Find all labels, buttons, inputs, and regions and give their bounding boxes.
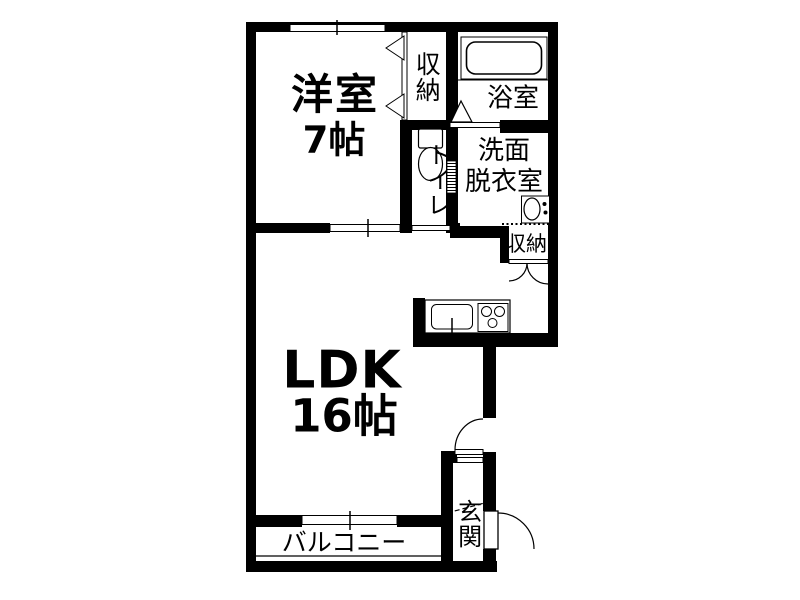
storage-door-arc-right [527,263,548,284]
front-door-leaf [484,511,498,549]
wall-kitchen-bottom [413,333,558,347]
bedroom-size-label: 7帖 [303,122,366,161]
stove-burner-2 [495,307,505,317]
wall-washroom-bottom [450,226,502,238]
wall-exterior-right [548,22,558,347]
wall-bath-bottom [500,120,548,133]
sliding-door-toilet [412,226,450,231]
balcony-label: バルコニー [282,530,407,556]
bathroom-label: 浴室 [487,85,539,112]
stove-burner-3 [488,319,497,328]
bathtub-icon [467,42,542,74]
ldk-size-label: 16帖 [290,392,398,439]
wall-ldk-balcony-left [246,515,302,527]
front-door-arc [498,513,534,549]
toilet-label: トイレ [423,143,448,218]
bathroom-door-threshold [450,123,500,128]
floorplan-drawing [0,0,800,600]
wall-ldk-balcony-right [397,515,453,527]
storage-label: 収納 [505,233,547,255]
floorplan: 洋室 7帖 収納 浴室 トイレ 洗面 脱衣室 収納 LDK 16帖 バルコニー … [0,0,800,600]
wall-exterior-left [246,22,256,572]
washbasin-icon [524,198,540,220]
wall-kitchen-left-stub [413,298,425,333]
wall-toilet-left [400,120,412,233]
washbasin-faucet-dot2 [544,211,548,215]
wall-entry-right-bottom [483,549,496,561]
closet-label: 収納 [413,51,439,103]
entrance-label: 玄関 [454,499,479,549]
closet-door-triangle-bottom [386,94,404,118]
washbasin-faucet-dot [543,202,547,206]
entry-door-arc [455,419,483,450]
stove-burner-1 [482,307,492,317]
wall-exterior-bottom [246,561,497,572]
closet-door-triangle-top [386,36,404,60]
entrance-step-line [457,458,483,463]
storage-door-arc-left [509,263,527,281]
storage-front-line [509,260,548,264]
wall-bedroom-ldk [246,223,330,233]
bedroom-label: 洋室 [291,73,379,117]
wall-entry-stub [483,347,496,418]
washroom-label-line2: 脱衣室 [465,167,543,198]
washroom-label: 洗面 脱衣室 [465,136,543,198]
washroom-label-line1: 洗面 [465,136,543,167]
entry-door-threshold [455,450,483,455]
sliding-door-bedroom-ldk [330,225,400,232]
